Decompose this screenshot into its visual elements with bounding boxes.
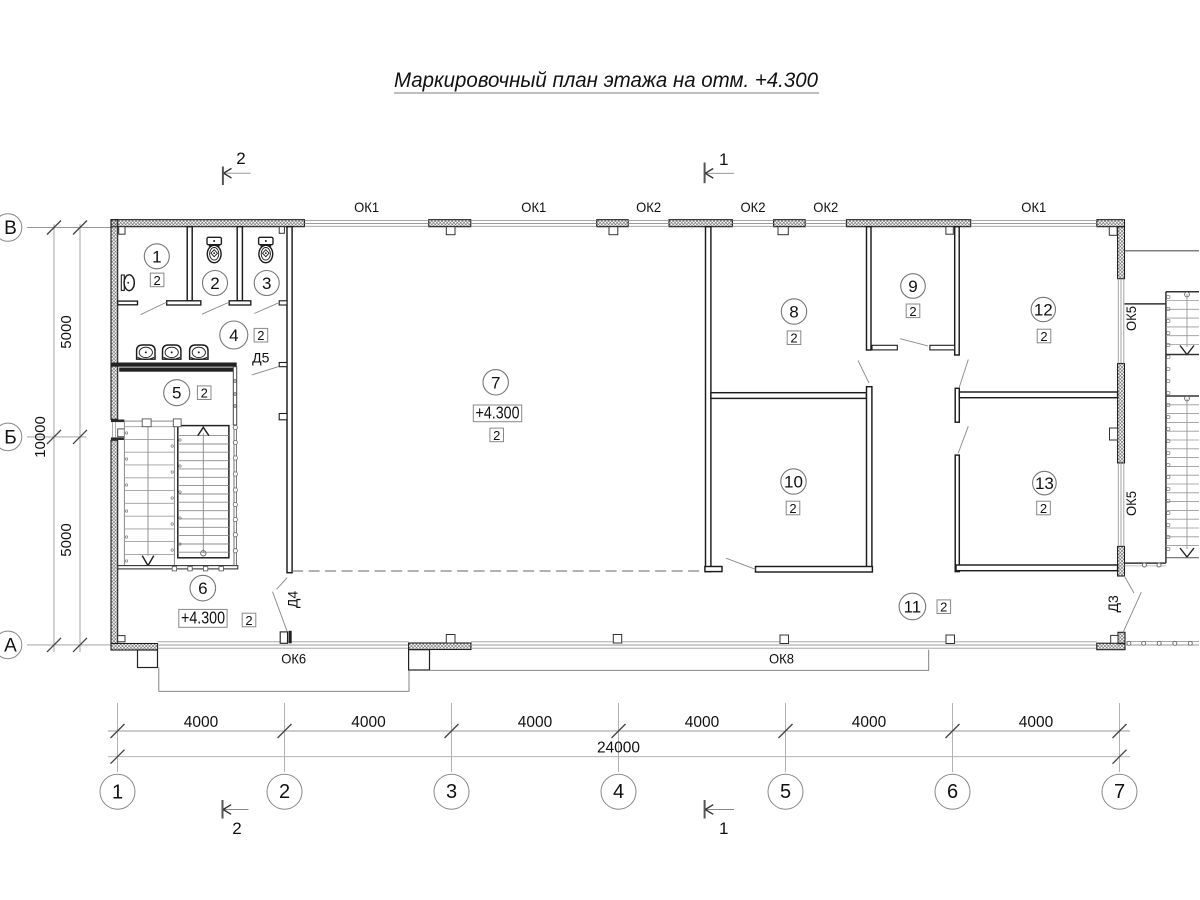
svg-text:Д3: Д3 [1105, 595, 1121, 612]
svg-text:4000: 4000 [685, 714, 720, 731]
svg-text:3: 3 [262, 274, 271, 293]
svg-text:4000: 4000 [518, 714, 553, 731]
svg-text:11: 11 [904, 598, 922, 617]
svg-text:5: 5 [780, 781, 791, 803]
svg-text:2: 2 [493, 428, 500, 443]
svg-text:+4.300: +4.300 [476, 403, 520, 423]
svg-text:2: 2 [245, 613, 252, 628]
svg-text:4000: 4000 [351, 714, 386, 731]
svg-text:2: 2 [790, 331, 797, 346]
svg-text:2: 2 [940, 600, 947, 615]
svg-text:2: 2 [153, 273, 160, 288]
svg-text:Б: Б [4, 427, 16, 448]
svg-text:5000: 5000 [58, 523, 75, 556]
svg-text:1: 1 [112, 782, 123, 804]
svg-text:7: 7 [491, 373, 500, 392]
svg-text:2: 2 [232, 819, 241, 838]
svg-text:2: 2 [257, 328, 264, 343]
svg-text:2: 2 [279, 781, 290, 803]
svg-text:Маркировочный план этажа на от: Маркировочный план этажа на отм. +4.300 [394, 68, 818, 92]
svg-text:Д4: Д4 [285, 591, 301, 608]
svg-text:13: 13 [1035, 474, 1054, 493]
svg-text:ОК2: ОК2 [813, 199, 838, 215]
svg-text:1: 1 [152, 247, 161, 266]
svg-text:5000: 5000 [58, 315, 75, 348]
svg-text:6: 6 [198, 579, 207, 598]
svg-text:ОК2: ОК2 [636, 199, 661, 215]
svg-text:ОК1: ОК1 [521, 199, 546, 215]
svg-text:Д5: Д5 [252, 350, 269, 366]
svg-text:4: 4 [613, 781, 624, 803]
svg-text:24000: 24000 [597, 740, 640, 757]
svg-text:4000: 4000 [1019, 714, 1054, 731]
svg-text:3: 3 [446, 781, 457, 803]
svg-text:10000: 10000 [32, 416, 49, 458]
svg-text:А: А [4, 635, 17, 656]
svg-text:ОК8: ОК8 [769, 651, 794, 667]
svg-text:1: 1 [719, 150, 728, 169]
svg-text:7: 7 [1114, 781, 1125, 803]
svg-text:+4.300: +4.300 [181, 608, 225, 628]
svg-text:12: 12 [1034, 301, 1053, 320]
svg-text:2: 2 [210, 274, 219, 293]
svg-text:ОК6: ОК6 [281, 651, 306, 667]
svg-text:ОК2: ОК2 [741, 199, 766, 215]
svg-text:ОК5: ОК5 [1123, 306, 1139, 331]
svg-text:9: 9 [908, 277, 917, 296]
svg-text:В: В [4, 218, 17, 239]
svg-text:10: 10 [784, 473, 803, 492]
svg-text:5: 5 [172, 384, 181, 403]
svg-text:8: 8 [789, 303, 798, 322]
svg-text:1: 1 [719, 819, 728, 838]
svg-text:2: 2 [1040, 329, 1047, 344]
svg-text:6: 6 [947, 781, 958, 803]
svg-text:ОК1: ОК1 [1021, 199, 1046, 215]
svg-text:4: 4 [229, 326, 238, 345]
svg-text:ОК5: ОК5 [1123, 491, 1139, 516]
svg-text:2: 2 [201, 386, 208, 401]
svg-text:2: 2 [236, 149, 245, 168]
svg-text:4000: 4000 [852, 714, 887, 731]
svg-text:2: 2 [909, 304, 916, 319]
svg-text:4000: 4000 [184, 714, 219, 731]
svg-text:ОК1: ОК1 [354, 199, 379, 215]
svg-text:2: 2 [1040, 501, 1047, 516]
svg-text:2: 2 [789, 501, 796, 516]
